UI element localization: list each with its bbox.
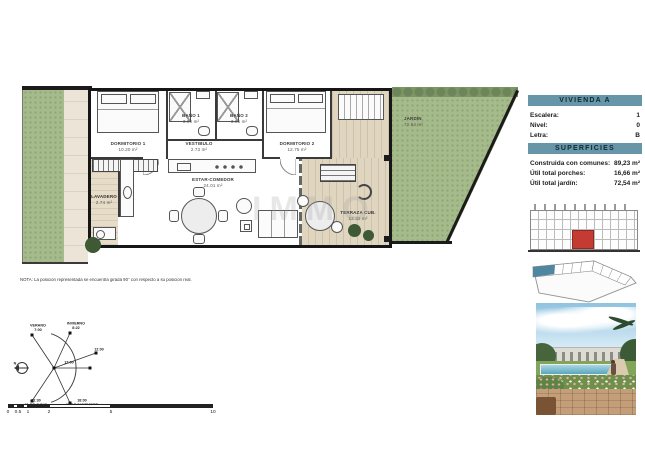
scale-bar: 0 0.5 1 2 5 10 [8, 404, 218, 420]
boundary-wall-bottom [22, 262, 88, 264]
info-row-nivel: Nivel: 0 [530, 121, 640, 130]
info-row-letra: Letra: B [530, 131, 640, 140]
planter-box [320, 164, 356, 182]
superficie-label: Construida con comunes: [530, 160, 610, 167]
info-row-escalera: Escalera: 1 [530, 111, 640, 120]
room-label-bano-1: BAÑO 1 3.90 m² [174, 114, 209, 125]
tv-screen [244, 224, 250, 230]
kitchen-counter [168, 159, 256, 173]
plant [85, 237, 101, 253]
left-path [64, 90, 88, 264]
room-name: LAVADERO [91, 195, 118, 201]
room-area: 10.20 m² [103, 148, 154, 154]
room-label-dormitorio-1: DORMITORIO 1 10.20 m² [103, 142, 154, 153]
superficie-value: 89,23 m² [614, 159, 640, 168]
interior-wall [262, 157, 280, 159]
superficie-row-jardin: Útil total jardín: 72,54 m² [530, 179, 640, 188]
room-name: ESTAR-COMEDOR [187, 178, 240, 184]
room-area: 2.74 m² [91, 201, 118, 207]
building-elevation [528, 204, 640, 254]
room-area: 12.75 m² [272, 148, 322, 154]
room-label-bano-2: BAÑO 2 3.85 m² [222, 114, 257, 125]
interior-wall [262, 91, 264, 159]
room-name: DORMITORIO 2 [272, 142, 322, 148]
room-area: 3.90 m² [174, 120, 209, 126]
info-value: 1 [636, 111, 640, 120]
north-label: N [13, 362, 18, 366]
superficie-value: 72,54 m² [614, 179, 640, 188]
elevation-ground-line [528, 250, 640, 252]
column [384, 155, 390, 161]
scale-tick: 0.5 [15, 410, 22, 415]
render-planter [536, 397, 556, 415]
kitchen-sink [177, 163, 191, 171]
sun-lounger [338, 94, 384, 120]
room-area: 3.85 m² [222, 120, 257, 126]
boundary-wall-top [22, 86, 92, 90]
pillow [101, 94, 127, 104]
garden-hedge [392, 87, 518, 97]
pillow [130, 94, 156, 104]
info-value: 0 [636, 121, 640, 130]
toilet [246, 126, 258, 136]
column [384, 236, 390, 242]
sun-label-noon-outer: 12:00 [92, 348, 106, 352]
sun-ray-lines [32, 333, 96, 403]
sun-label-verano: VERANO 7:00 [28, 324, 48, 333]
toilet [198, 126, 210, 136]
scale-tick: 1 [27, 410, 30, 415]
chair [193, 234, 205, 244]
chair [169, 210, 179, 222]
sun-label-invierno: INVIERNO 8:22 [65, 322, 87, 331]
cooktop [213, 163, 243, 171]
info-value: B [635, 131, 640, 140]
scale-segment [111, 404, 213, 408]
superficie-row-construida: Construida con comunes: 89,23 m² [530, 159, 640, 168]
scale-tick: 10 [210, 410, 215, 415]
interior-wall [330, 91, 332, 159]
superficies-header: SUPERFICIES [528, 143, 642, 154]
room-area: 72.54 m² [404, 123, 442, 129]
bed [266, 91, 326, 133]
render-pool [540, 364, 612, 375]
superficie-row-porches: Útil total porches: 16,66 m² [530, 169, 640, 178]
room-label-jardin: JARDÍN 72.54 m² [404, 117, 442, 128]
superficie-label: Útil total jardín: [530, 180, 578, 187]
kitchen-sink [123, 186, 132, 199]
room-label-dormitorio-2: DORMITORIO 2 12.75 m² [272, 142, 322, 153]
disclaimer-note: NOTA: La posición representada se encuen… [20, 278, 192, 282]
room-area: 2.73 m² [177, 148, 221, 154]
scale-tick: 5 [110, 410, 113, 415]
info-label: Escalera: [530, 112, 559, 119]
room-area: 24.01 m² [187, 184, 240, 190]
blanket-line [267, 108, 325, 109]
watermark: IMMO [252, 190, 377, 229]
armchair [236, 198, 252, 214]
scale-segment [49, 404, 111, 408]
room-label-lavadero: LAVADERO 2.74 m² [91, 195, 118, 206]
door-arc [280, 159, 296, 175]
site-plan [528, 258, 640, 304]
floorplan-sheet: DORMITORIO 1 10.20 m² BAÑO 1 3.90 m² VES… [0, 0, 645, 451]
sink [196, 91, 210, 99]
scale-tick: 0 [7, 410, 10, 415]
info-label: Letra: [530, 132, 548, 139]
superficie-value: 16,66 m² [614, 169, 640, 178]
dining-table [181, 198, 217, 234]
info-label: Nivel: [530, 122, 548, 129]
tv-unit [240, 220, 252, 232]
render-person [611, 363, 616, 375]
season-time: 8:22 [65, 326, 87, 330]
kitchen-counter-side [120, 159, 134, 217]
pillow [298, 94, 323, 103]
superficie-label: Útil total porches: [530, 170, 585, 177]
room-label-estar-comedor: ESTAR-COMEDOR 24.01 m² [187, 178, 240, 189]
sink [244, 91, 258, 99]
blanket-line [98, 109, 158, 110]
interior-wall [166, 139, 264, 141]
vivienda-header: VIVIENDA A [528, 95, 642, 106]
scale-segment [28, 404, 49, 408]
scale-tick: 2 [48, 410, 51, 415]
left-garden [22, 90, 66, 264]
plant [363, 230, 374, 241]
render-photo [536, 303, 636, 415]
pillow [270, 94, 295, 103]
bed [97, 91, 159, 133]
garden-wall-bottom [392, 241, 452, 244]
interior-wall [166, 91, 168, 159]
highlighted-unit-red [572, 230, 594, 249]
chair [218, 210, 228, 222]
room-label-vestibulo: VESTIBULO 2.73 m² [177, 142, 221, 153]
season-time: 7:00 [28, 328, 48, 332]
sun-label-noon-inner: 12:00 [62, 361, 76, 365]
